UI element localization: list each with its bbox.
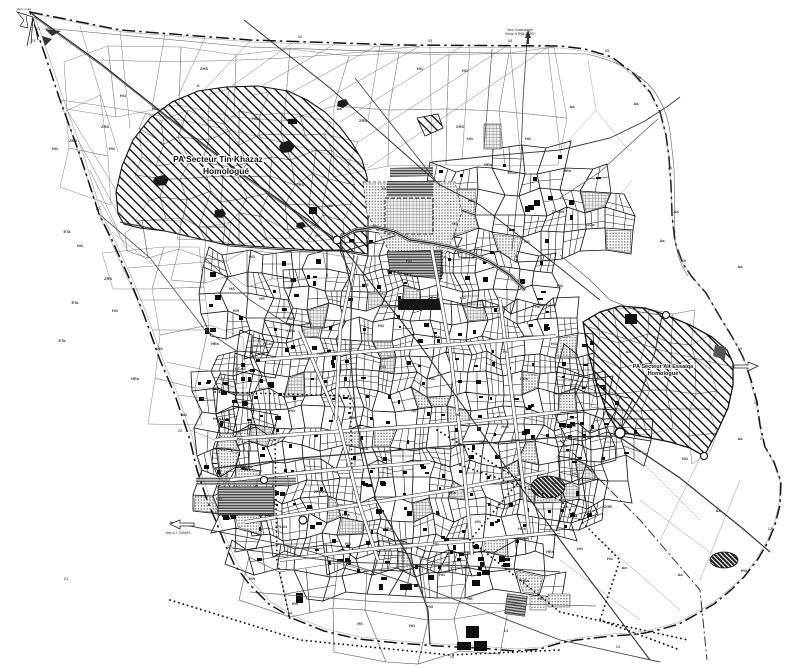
svg-text:ETa: ETa bbox=[71, 300, 79, 305]
svg-text:Hi1: Hi1 bbox=[462, 68, 469, 73]
svg-text:HS: HS bbox=[452, 221, 458, 226]
svg-text:Hi1: Hi1 bbox=[380, 364, 387, 369]
svg-text:Aa: Aa bbox=[737, 436, 743, 441]
svg-text:Aa: Aa bbox=[737, 264, 743, 269]
svg-text:Hi1: Hi1 bbox=[216, 496, 223, 501]
svg-text:HCa1: HCa1 bbox=[263, 341, 274, 346]
svg-text:HVi: HVi bbox=[538, 596, 545, 601]
svg-text:Hca: Hca bbox=[511, 437, 519, 442]
svg-text:22: 22 bbox=[96, 206, 101, 211]
svg-text:20: 20 bbox=[178, 428, 183, 433]
svg-text:Aa: Aa bbox=[715, 508, 721, 513]
svg-text:Hi1: Hi1 bbox=[378, 323, 385, 328]
svg-text:Hi1: Hi1 bbox=[551, 341, 558, 346]
svg-text:23: 23 bbox=[31, 38, 36, 43]
svg-text:Hi1: Hi1 bbox=[525, 136, 532, 141]
svg-text:Aa: Aa bbox=[569, 104, 575, 109]
svg-text:Hi1: Hi1 bbox=[112, 308, 119, 313]
svg-text:Aa: Aa bbox=[677, 572, 683, 577]
svg-text:Hi1: Hi1 bbox=[409, 623, 416, 628]
svg-text:18: 18 bbox=[198, 471, 203, 476]
svg-text:PA Secteur Ait Essaiqa: PA Secteur Ait Essaiqa bbox=[633, 364, 695, 370]
svg-text:ZRS: ZRS bbox=[69, 138, 77, 143]
svg-text:HEa: HEa bbox=[360, 446, 369, 451]
svg-text:Hi1: Hi1 bbox=[607, 556, 614, 561]
svg-text:ZGE: ZGE bbox=[568, 423, 577, 428]
svg-text:ZPU01: ZPU01 bbox=[240, 464, 253, 469]
svg-text:01: 01 bbox=[36, 26, 41, 31]
svg-text:ZGE: ZGE bbox=[604, 504, 613, 509]
svg-text:HE: HE bbox=[535, 304, 541, 309]
svg-text:ZRS: ZRS bbox=[104, 276, 112, 281]
svg-text:Vers Louta: Vers Louta bbox=[17, 7, 32, 11]
svg-text:06: 06 bbox=[637, 75, 642, 80]
svg-text:HEa: HEa bbox=[521, 578, 530, 583]
svg-text:ETa: ETa bbox=[63, 229, 71, 234]
svg-text:HVi: HVi bbox=[292, 601, 299, 606]
svg-text:Hi1: Hi1 bbox=[577, 546, 584, 551]
svg-text:HS: HS bbox=[317, 351, 323, 356]
svg-text:Hi1: Hi1 bbox=[252, 116, 259, 121]
svg-text:Hi1: Hi1 bbox=[524, 239, 531, 244]
svg-text:15: 15 bbox=[616, 644, 621, 649]
svg-text:HS: HS bbox=[229, 286, 235, 291]
svg-text:HCa1: HCa1 bbox=[213, 416, 224, 421]
svg-text:Aa: Aa bbox=[585, 390, 591, 395]
svg-text:Hi1: Hi1 bbox=[429, 376, 436, 381]
svg-text:HEa: HEa bbox=[384, 526, 393, 531]
svg-text:EICa: EICa bbox=[508, 170, 518, 175]
svg-text:Hi1: Hi1 bbox=[259, 386, 266, 391]
svg-text:HE: HE bbox=[467, 596, 473, 601]
svg-text:07: 07 bbox=[668, 166, 673, 171]
svg-text:08: 08 bbox=[682, 258, 687, 263]
svg-text:ZPU01: ZPU01 bbox=[314, 489, 327, 494]
svg-text:ZRS: ZRS bbox=[101, 124, 109, 129]
svg-text:03: 03 bbox=[428, 38, 433, 43]
svg-text:HEa: HEa bbox=[342, 512, 351, 517]
svg-text:EICa: EICa bbox=[586, 222, 596, 227]
svg-text:Hi1: Hi1 bbox=[467, 136, 474, 141]
svg-text:HEa: HEa bbox=[484, 162, 493, 167]
svg-text:Hi1: Hi1 bbox=[475, 519, 482, 524]
svg-text:Hi1: Hi1 bbox=[349, 415, 356, 420]
svg-text:16: 16 bbox=[450, 654, 455, 659]
svg-text:Aa: Aa bbox=[440, 462, 446, 467]
svg-text:ZPU03: ZPU03 bbox=[552, 209, 565, 214]
svg-text:14: 14 bbox=[288, 610, 293, 615]
svg-text:HE: HE bbox=[411, 408, 417, 413]
svg-text:HEa: HEa bbox=[448, 490, 457, 495]
svg-text:Aa: Aa bbox=[633, 101, 639, 106]
svg-text:Hi1: Hi1 bbox=[109, 146, 116, 151]
svg-text:HVi: HVi bbox=[249, 576, 256, 581]
svg-text:Hi1: Hi1 bbox=[417, 66, 424, 71]
svg-text:HS: HS bbox=[259, 296, 265, 301]
svg-text:ZRS: ZRS bbox=[296, 182, 304, 187]
svg-text:HE: HE bbox=[479, 440, 485, 445]
svg-text:Aa: Aa bbox=[336, 106, 342, 111]
svg-text:Hi1: Hi1 bbox=[382, 186, 389, 191]
svg-text:Hi1: Hi1 bbox=[439, 572, 446, 577]
svg-text:Hi1: Hi1 bbox=[52, 146, 59, 151]
svg-text:Hca: Hca bbox=[501, 424, 509, 429]
svg-text:HE: HE bbox=[455, 412, 461, 417]
svg-text:HS: HS bbox=[315, 233, 321, 238]
svg-text:Homologué: Homologué bbox=[648, 371, 679, 377]
svg-text:Route N RN8-AB287: Route N RN8-AB287 bbox=[505, 32, 535, 36]
svg-text:05: 05 bbox=[605, 48, 610, 53]
svg-text:HEa: HEa bbox=[287, 328, 296, 333]
svg-text:Hi1: Hi1 bbox=[289, 408, 296, 413]
svg-text:ZPU01: ZPU01 bbox=[275, 524, 288, 529]
svg-text:Hi1: Hi1 bbox=[345, 541, 352, 546]
svg-text:Homologué: Homologué bbox=[203, 166, 249, 176]
svg-text:Hi1: Hi1 bbox=[237, 436, 244, 441]
svg-text:ZRS: ZRS bbox=[456, 124, 464, 129]
svg-text:19: 19 bbox=[754, 400, 759, 405]
svg-text:Hi1: Hi1 bbox=[557, 283, 564, 288]
svg-text:21: 21 bbox=[64, 576, 69, 581]
svg-text:Aa: Aa bbox=[621, 565, 627, 570]
svg-text:Aa: Aa bbox=[551, 480, 557, 485]
svg-text:ZRS: ZRS bbox=[359, 118, 367, 123]
svg-text:HVi: HVi bbox=[233, 308, 240, 313]
svg-text:02: 02 bbox=[298, 34, 303, 39]
svg-text:HVi: HVi bbox=[427, 604, 434, 609]
svg-text:Hi1: Hi1 bbox=[77, 243, 84, 248]
svg-text:HEa: HEa bbox=[502, 465, 511, 470]
svg-text:Hi1: Hi1 bbox=[181, 412, 188, 417]
svg-text:HS: HS bbox=[363, 282, 369, 287]
svg-text:Hi1: Hi1 bbox=[460, 295, 467, 300]
svg-text:Hi1: Hi1 bbox=[249, 254, 256, 259]
svg-text:10: 10 bbox=[760, 436, 765, 441]
svg-text:Aa: Aa bbox=[625, 349, 631, 354]
svg-text:ETa: ETa bbox=[58, 338, 66, 343]
svg-text:Hi1: Hi1 bbox=[433, 541, 440, 546]
svg-text:HEa: HEa bbox=[546, 549, 555, 554]
svg-text:HEa: HEa bbox=[432, 334, 441, 339]
svg-text:Hi1: Hi1 bbox=[406, 258, 413, 263]
svg-text:PA Secteur Tin Khazaz: PA Secteur Tin Khazaz bbox=[173, 154, 263, 164]
svg-text:12: 12 bbox=[768, 526, 773, 531]
svg-text:Hi1: Hi1 bbox=[503, 349, 510, 354]
svg-text:HS: HS bbox=[357, 621, 363, 626]
svg-text:ZHS: ZHS bbox=[200, 66, 208, 71]
svg-text:17: 17 bbox=[228, 544, 233, 549]
svg-text:G: G bbox=[196, 83, 199, 88]
svg-text:09: 09 bbox=[738, 346, 743, 351]
svg-text:HEa: HEa bbox=[563, 168, 572, 173]
svg-text:HEa: HEa bbox=[518, 526, 527, 531]
svg-text:13: 13 bbox=[504, 628, 509, 633]
svg-text:Hi1: Hi1 bbox=[120, 93, 127, 98]
svg-text:HEa: HEa bbox=[131, 376, 140, 381]
svg-text:04: 04 bbox=[508, 38, 513, 43]
svg-text:Hi1: Hi1 bbox=[682, 456, 689, 461]
svg-text:Aa: Aa bbox=[659, 238, 665, 243]
svg-text:HVi: HVi bbox=[741, 568, 748, 573]
svg-text:HS: HS bbox=[468, 198, 474, 203]
svg-text:Aa: Aa bbox=[673, 209, 679, 214]
svg-text:HEa: HEa bbox=[520, 376, 529, 381]
svg-text:HEa: HEa bbox=[211, 341, 220, 346]
svg-text:Vers A.T. OMARA: Vers A.T. OMARA bbox=[165, 531, 191, 535]
svg-text:HCa1: HCa1 bbox=[235, 366, 246, 371]
svg-text:Hi1: Hi1 bbox=[152, 106, 159, 111]
svg-text:Hi1: Hi1 bbox=[572, 471, 579, 476]
svg-text:HS: HS bbox=[327, 203, 333, 208]
svg-text:HS: HS bbox=[157, 346, 163, 351]
